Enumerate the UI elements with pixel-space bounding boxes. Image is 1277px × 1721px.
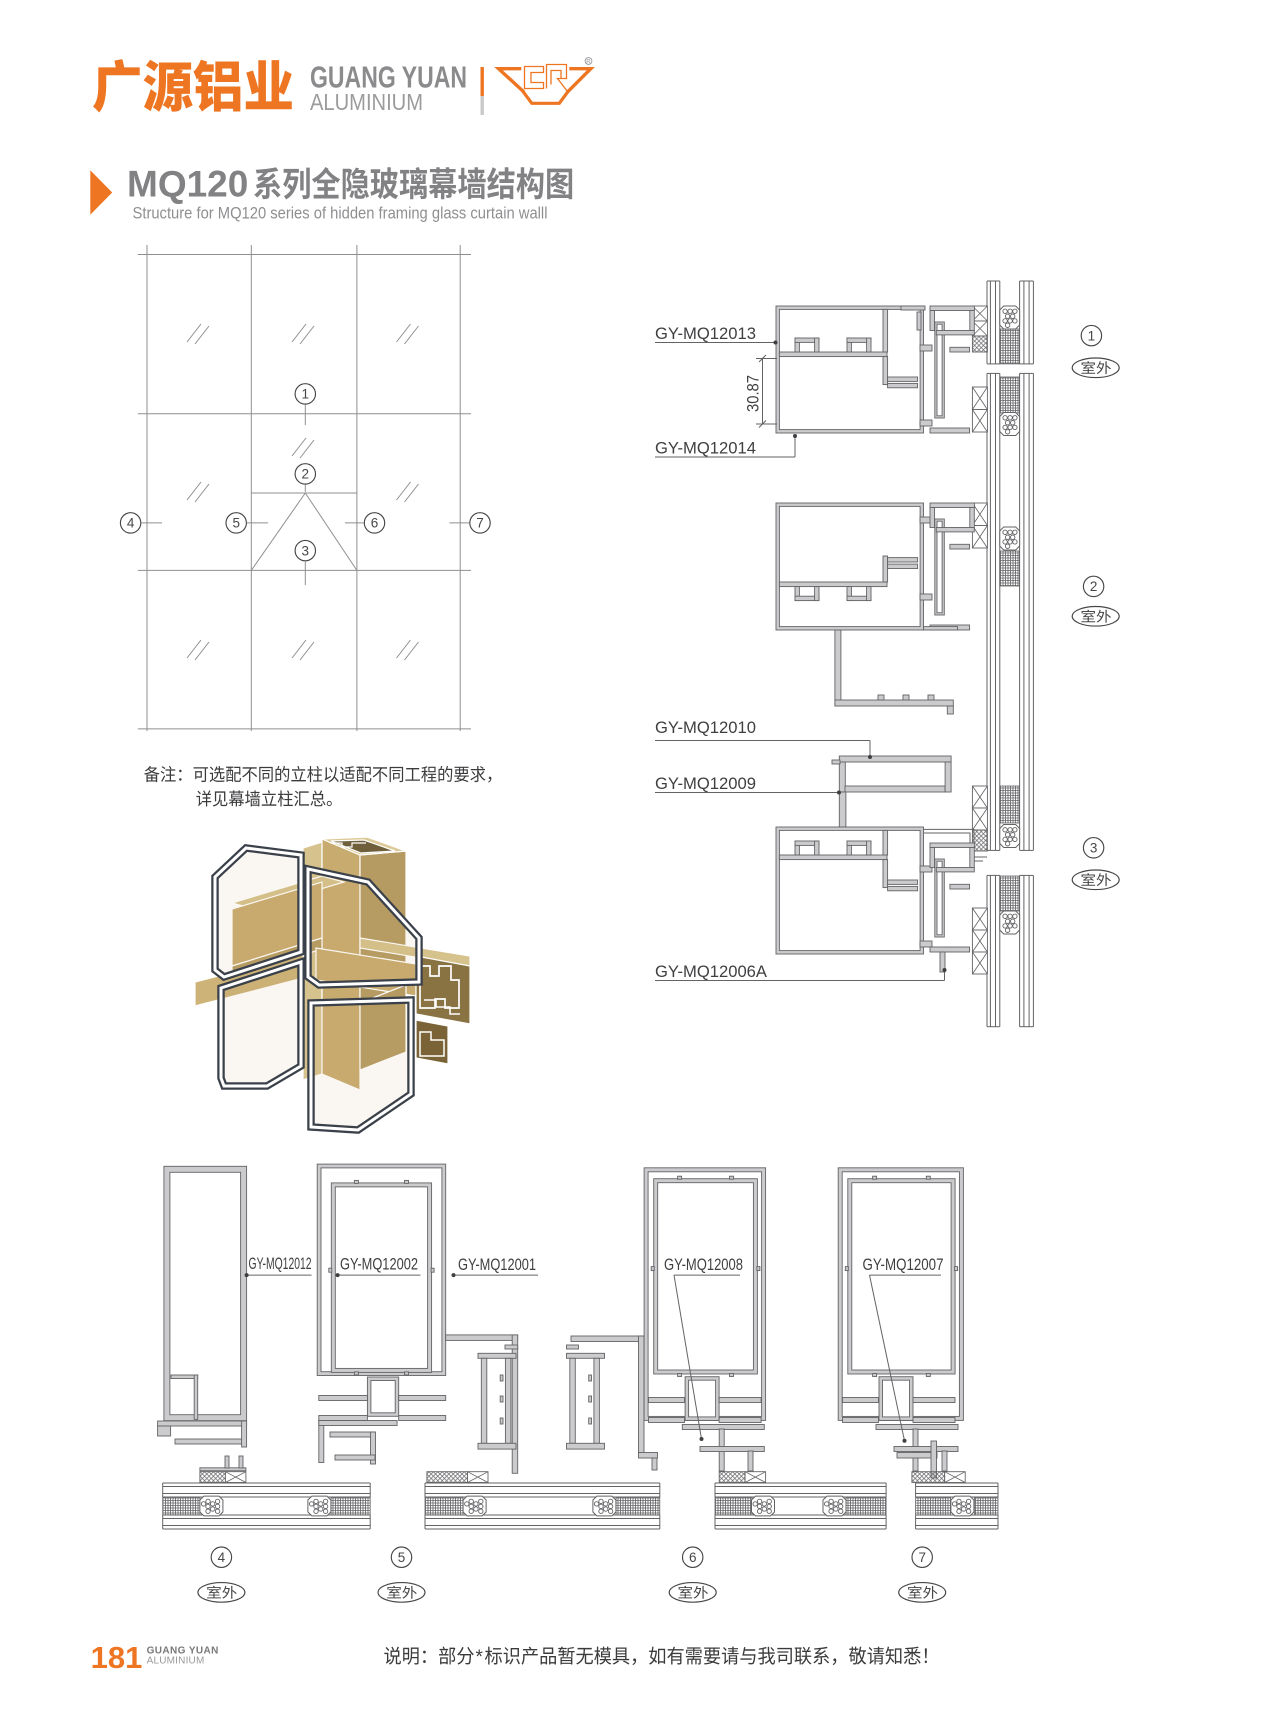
svg-text:R: R xyxy=(586,60,591,66)
svg-text:4: 4 xyxy=(218,1550,226,1565)
svg-text:6: 6 xyxy=(689,1550,697,1565)
svg-text:1: 1 xyxy=(302,387,310,402)
svg-text:GY-MQ12006A: GY-MQ12006A xyxy=(655,963,767,981)
svg-text:7: 7 xyxy=(476,516,484,531)
svg-text:1: 1 xyxy=(1088,328,1096,343)
svg-text:GY-MQ12012: GY-MQ12012 xyxy=(249,1255,312,1273)
svg-text:ALUMINIUM: ALUMINIUM xyxy=(310,89,423,115)
svg-text:3: 3 xyxy=(1090,841,1098,856)
svg-text:3: 3 xyxy=(302,543,310,558)
svg-text:Structure for MQ120 series of: Structure for MQ120 series of hidden fra… xyxy=(133,205,548,223)
svg-text:ALUMINIUM: ALUMINIUM xyxy=(147,1656,205,1667)
svg-text:GY-MQ12007: GY-MQ12007 xyxy=(863,1256,944,1274)
svg-text:2: 2 xyxy=(1090,579,1098,594)
svg-text:*: * xyxy=(476,1647,484,1668)
svg-text:GY-MQ12010: GY-MQ12010 xyxy=(655,719,756,737)
svg-text:4: 4 xyxy=(127,516,135,531)
svg-text:5: 5 xyxy=(398,1550,406,1565)
svg-text:5: 5 xyxy=(232,516,240,531)
svg-text:GY-MQ12001: GY-MQ12001 xyxy=(458,1256,536,1274)
svg-text:30.87: 30.87 xyxy=(745,375,763,412)
svg-text:GY-MQ12002: GY-MQ12002 xyxy=(340,1256,418,1274)
svg-text:GY-MQ12008: GY-MQ12008 xyxy=(664,1256,743,1274)
svg-text:GY-MQ12009: GY-MQ12009 xyxy=(655,775,756,793)
svg-text:MQ120: MQ120 xyxy=(127,164,248,205)
svg-text:6: 6 xyxy=(371,516,379,531)
svg-text:181: 181 xyxy=(91,1640,143,1675)
svg-text:GY-MQ12013: GY-MQ12013 xyxy=(655,325,756,343)
svg-text:2: 2 xyxy=(302,467,310,482)
svg-text:7: 7 xyxy=(918,1550,926,1565)
svg-text:GY-MQ12014: GY-MQ12014 xyxy=(655,440,756,458)
